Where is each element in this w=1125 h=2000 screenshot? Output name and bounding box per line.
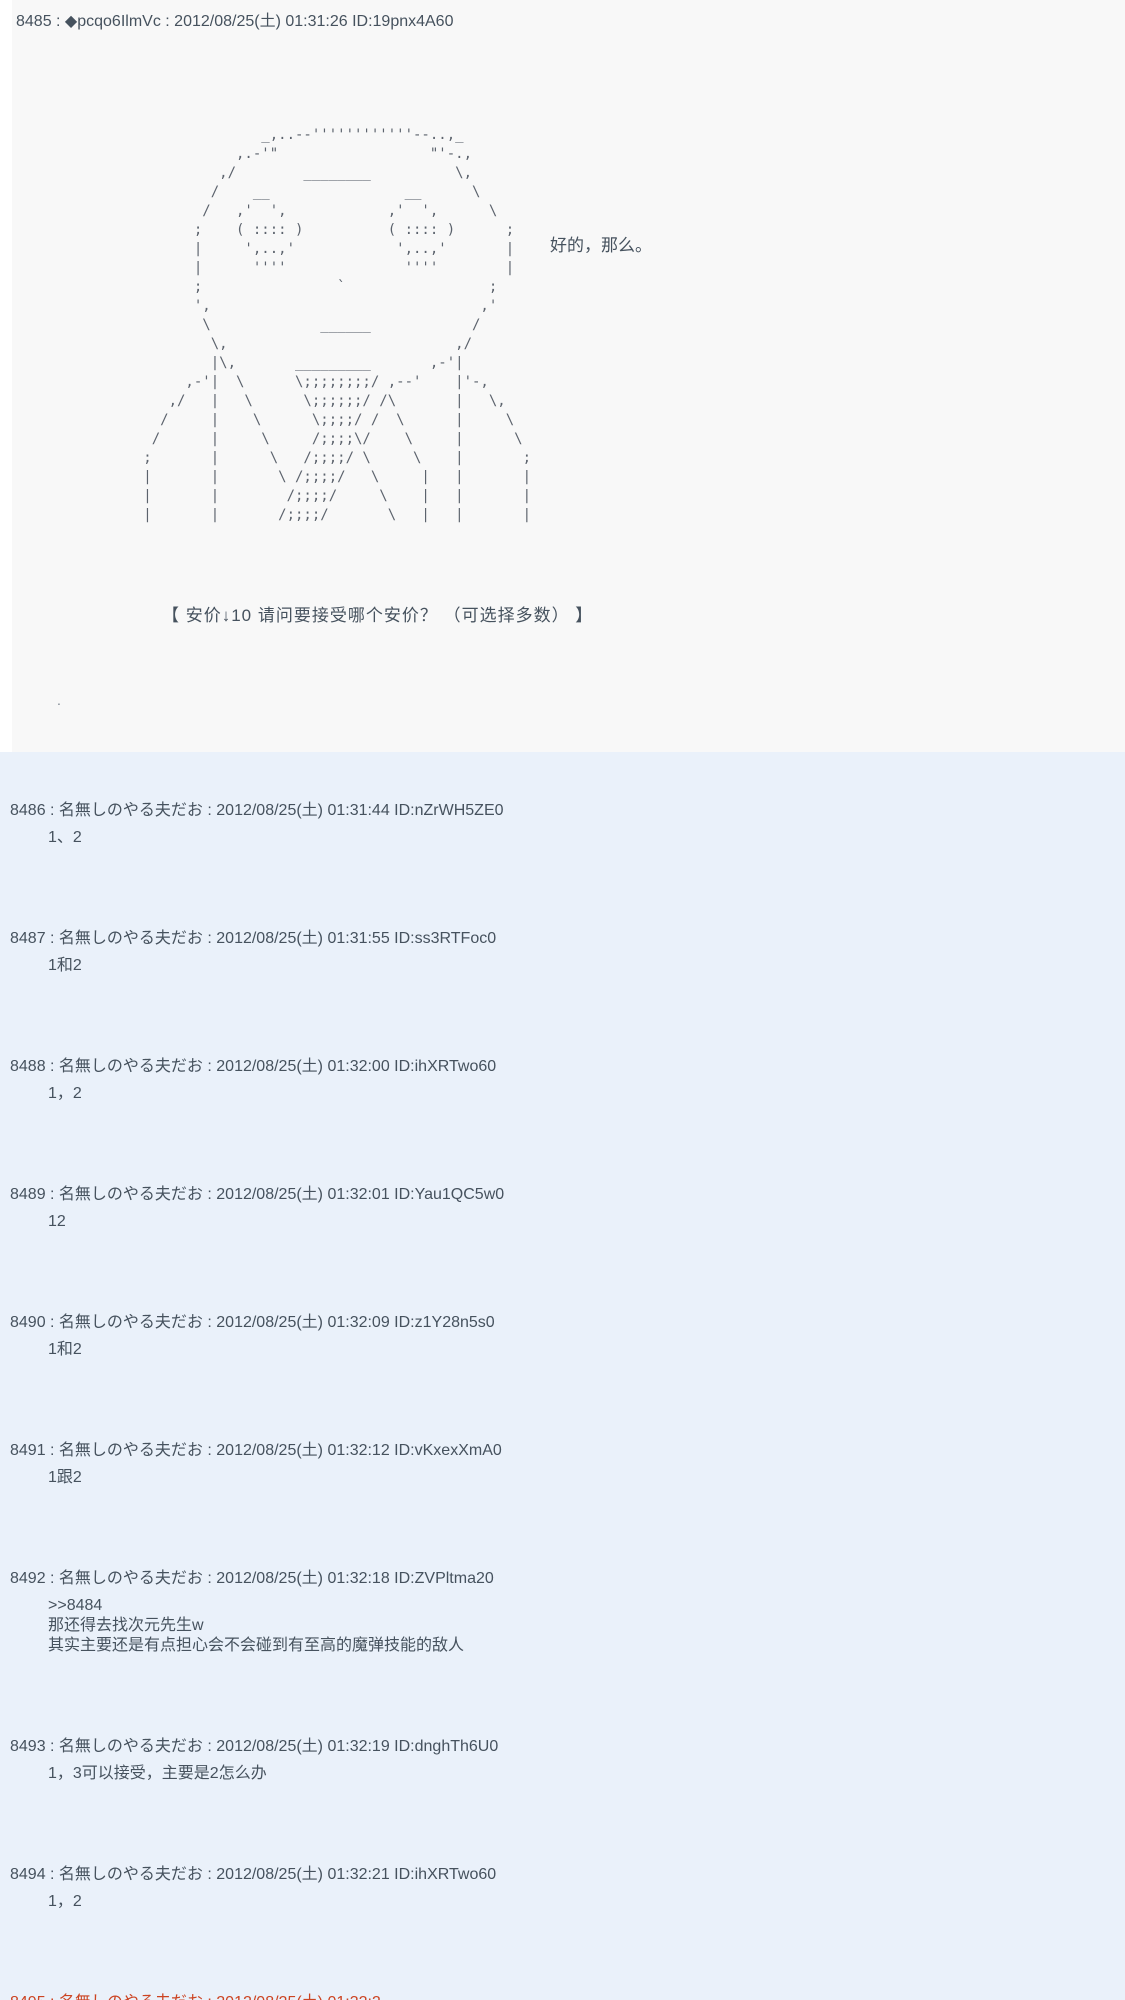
left-margin-strip	[0, 0, 12, 752]
stray-dot: .	[57, 692, 61, 708]
post-body-line: 其实主要还是有点担心会不会碰到有至高的魔弹技能的敌人	[48, 1636, 1125, 1656]
post-header: 8487 : 名無しのやる夫だお : 2012/08/25(土) 01:31:5…	[10, 929, 1125, 949]
post-header: 8494 : 名無しのやる夫だお : 2012/08/25(土) 01:32:2…	[10, 1865, 1125, 1885]
post-header: 8489 : 名無しのやる夫だお : 2012/08/25(土) 01:32:0…	[10, 1185, 1125, 1205]
post: 8488 : 名無しのやる夫だお : 2012/08/25(土) 01:32:0…	[10, 1057, 1125, 1104]
anchor-prompt-text: 【 安价↓10 请问要接受哪个安价？ （可选择多数） 】	[162, 601, 593, 626]
thread-replies-section: 8486 : 名無しのやる夫だお : 2012/08/25(土) 01:31:4…	[0, 752, 1125, 2000]
dialogue-text: 好的，那么。	[550, 231, 652, 256]
post-header: 8488 : 名無しのやる夫だお : 2012/08/25(土) 01:32:0…	[10, 1057, 1125, 1077]
post-body-line: 1跟2	[48, 1468, 1125, 1488]
post-body-line: 1，2	[48, 1892, 1125, 1912]
post: 8486 : 名無しのやる夫だお : 2012/08/25(土) 01:31:4…	[10, 801, 1125, 848]
post: 8490 : 名無しのやる夫だお : 2012/08/25(土) 01:32:0…	[10, 1313, 1125, 1360]
post-header: 8493 : 名無しのやる夫だお : 2012/08/25(土) 01:32:1…	[10, 1737, 1125, 1757]
reply-anchor-link[interactable]: >>8484	[48, 1596, 1125, 1616]
post-header: 8490 : 名無しのやる夫だお : 2012/08/25(土) 01:32:0…	[10, 1313, 1125, 1333]
post-header: 8491 : 名無しのやる夫だお : 2012/08/25(土) 01:32:1…	[10, 1441, 1125, 1461]
post-header: 8492 : 名無しのやる夫だお : 2012/08/25(土) 01:32:1…	[10, 1569, 1125, 1589]
thread-posts: 8486 : 名無しのやる夫だお : 2012/08/25(土) 01:31:4…	[10, 801, 1125, 2000]
post: 8492 : 名無しのやる夫だお : 2012/08/25(土) 01:32:1…	[10, 1569, 1125, 1656]
post-header: 8495 : 名無しのやる夫だお : 2012/08/25(土) 01:32:2	[10, 1993, 1125, 2000]
post: 8489 : 名無しのやる夫だお : 2012/08/25(土) 01:32:0…	[10, 1185, 1125, 1232]
post-body-line: 1、2	[48, 828, 1125, 848]
post: 8491 : 名無しのやる夫だお : 2012/08/25(土) 01:32:1…	[10, 1441, 1125, 1488]
post: 8494 : 名無しのやる夫だお : 2012/08/25(土) 01:32:2…	[10, 1865, 1125, 1912]
op-post-section: 8485 : ◆pcqo6IlmVc : 2012/08/25(土) 01:31…	[0, 0, 1125, 752]
post-body-line: 1，2	[48, 1084, 1125, 1104]
post-header: 8486 : 名無しのやる夫だお : 2012/08/25(土) 01:31:4…	[10, 801, 1125, 821]
post-body-line: 1，3可以接受，主要是2怎么办	[48, 1764, 1125, 1784]
post-body-line: 1和2	[48, 1340, 1125, 1360]
post-body-line: 12	[48, 1212, 1125, 1232]
post: 8493 : 名無しのやる夫だお : 2012/08/25(土) 01:32:1…	[10, 1737, 1125, 1784]
post-body-line: 那还得去找次元先生w	[48, 1616, 1125, 1636]
post-header: 8485 : ◆pcqo6IlmVc : 2012/08/25(土) 01:31…	[16, 12, 453, 32]
post-body-line: 1和2	[48, 956, 1125, 976]
post: 8487 : 名無しのやる夫だお : 2012/08/25(土) 01:31:5…	[10, 929, 1125, 976]
post-clipped: 8495 : 名無しのやる夫だお : 2012/08/25(土) 01:32:2	[10, 1993, 1125, 2000]
ascii-art-character: _,..--''''''''''''--..,_ ,.-'" "'-., ,/ …	[118, 126, 531, 525]
